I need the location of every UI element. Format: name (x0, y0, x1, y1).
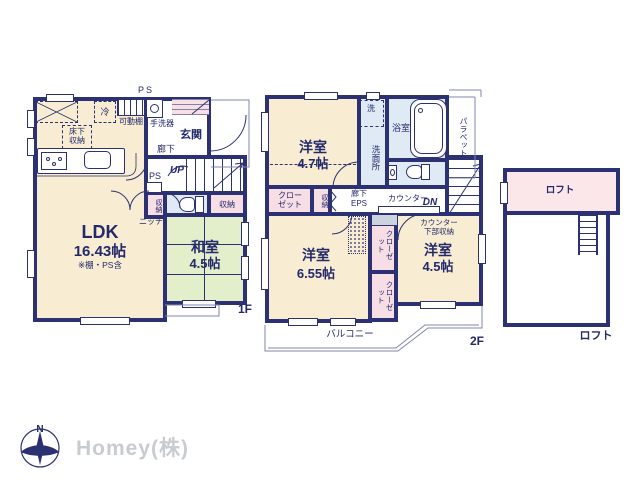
ps-shaft-box (146, 182, 162, 193)
corridor-label-1f: 廊下 (152, 144, 180, 154)
toilet-bowl-icon-2f (406, 165, 422, 179)
hand-basin-icon (146, 99, 163, 118)
underfloor-storage-label: 床下収納 (68, 127, 86, 145)
compass-north-label: N (33, 424, 47, 436)
toilet-tank-icon (195, 196, 204, 213)
window (27, 250, 35, 278)
hand-basin-label: 手洗器 (144, 119, 180, 128)
loft-label-inside: ロフト (538, 186, 582, 197)
storage-pink-label-1f: 収納 (211, 200, 243, 209)
bedroom2-size-label: 6.55帖 (290, 267, 342, 282)
ps-mid-label: PS (145, 171, 165, 181)
stove-icon (41, 152, 67, 170)
bedroom2-label: 洋室 (294, 247, 338, 263)
washitsu-label: 和室 (185, 239, 225, 255)
loft-label-outside: ロフト (574, 330, 618, 343)
storage-narrow-label-2f: 収納 (315, 190, 328, 212)
window (241, 256, 249, 280)
ldk-size-label: 16.43帖 (62, 243, 138, 260)
counter-under-storage-label: カウンター下部収納 (418, 219, 460, 236)
bedroom3-size-label: 4.5帖 (416, 260, 460, 275)
ldk-label: LDK (70, 222, 130, 243)
window (330, 318, 356, 326)
window (261, 112, 269, 152)
eps-label: EPS (345, 199, 373, 208)
loft-ladder-position (348, 216, 366, 254)
closet-c-label: クローゼット (373, 281, 393, 311)
ldk-note-label: ※棚・PS含 (66, 261, 134, 271)
up-label: UP (166, 165, 188, 177)
bathtub-icon (410, 99, 447, 158)
bedroom1-size-label: 4.7帖 (291, 157, 335, 172)
stairs-1f (186, 159, 243, 191)
entrance-step (172, 99, 209, 115)
washer-label: 洗 (361, 104, 381, 113)
window (304, 92, 338, 100)
storage-narrow-label-1f: 収納 (149, 195, 162, 217)
washitsu-size-label: 4.5帖 (183, 257, 227, 272)
window (478, 234, 486, 264)
window (46, 94, 74, 102)
closet-b-label: クローゼット (373, 230, 393, 260)
ps-top-label: PS (134, 85, 158, 95)
toilet-tank-icon-2f (421, 164, 430, 180)
window (241, 222, 249, 246)
sink-icon (84, 151, 111, 169)
fridge-label: 冷 (94, 107, 116, 117)
pantry-box (35, 101, 78, 123)
entrance-label: 玄関 (176, 129, 206, 142)
loft-ladder-icon (578, 215, 598, 255)
balcony-label: バルコニー (318, 330, 382, 341)
company-logo-text: Homey(株) (76, 437, 189, 461)
window (288, 318, 318, 326)
corner-basin-icon (388, 165, 397, 180)
window (80, 317, 130, 325)
closet-a-label: クローゼット (275, 191, 305, 209)
dn-label: DN (418, 197, 442, 209)
parapet-label: パラペット (455, 104, 468, 170)
niche-label: ニッチ (137, 217, 165, 226)
bedroom1-label: 洋室 (291, 139, 335, 155)
window (27, 138, 35, 156)
window (182, 300, 216, 308)
movable-shelf-box (117, 99, 145, 116)
floor-plan-canvas: PS 冷 可動棚 手洗器 玄関 廊下 床下収納 PS UP 収納 収納 ニッチ … (0, 0, 640, 480)
window (27, 110, 35, 128)
open-shelf-box (371, 214, 398, 226)
window (420, 301, 456, 309)
floor2-label: 2F (464, 335, 490, 349)
bathroom-label: 浴室 (387, 123, 415, 133)
window (500, 182, 508, 204)
floor1-label: 1F (232, 303, 258, 317)
toilet-bowl-icon (179, 197, 195, 212)
window (261, 238, 269, 290)
bedroom3-label: 洋室 (416, 242, 460, 258)
washroom-label: 洗面所 (366, 132, 380, 184)
tatami-line (167, 274, 243, 275)
window (366, 92, 380, 100)
corridor-label-2f: 廊下 (346, 189, 372, 198)
